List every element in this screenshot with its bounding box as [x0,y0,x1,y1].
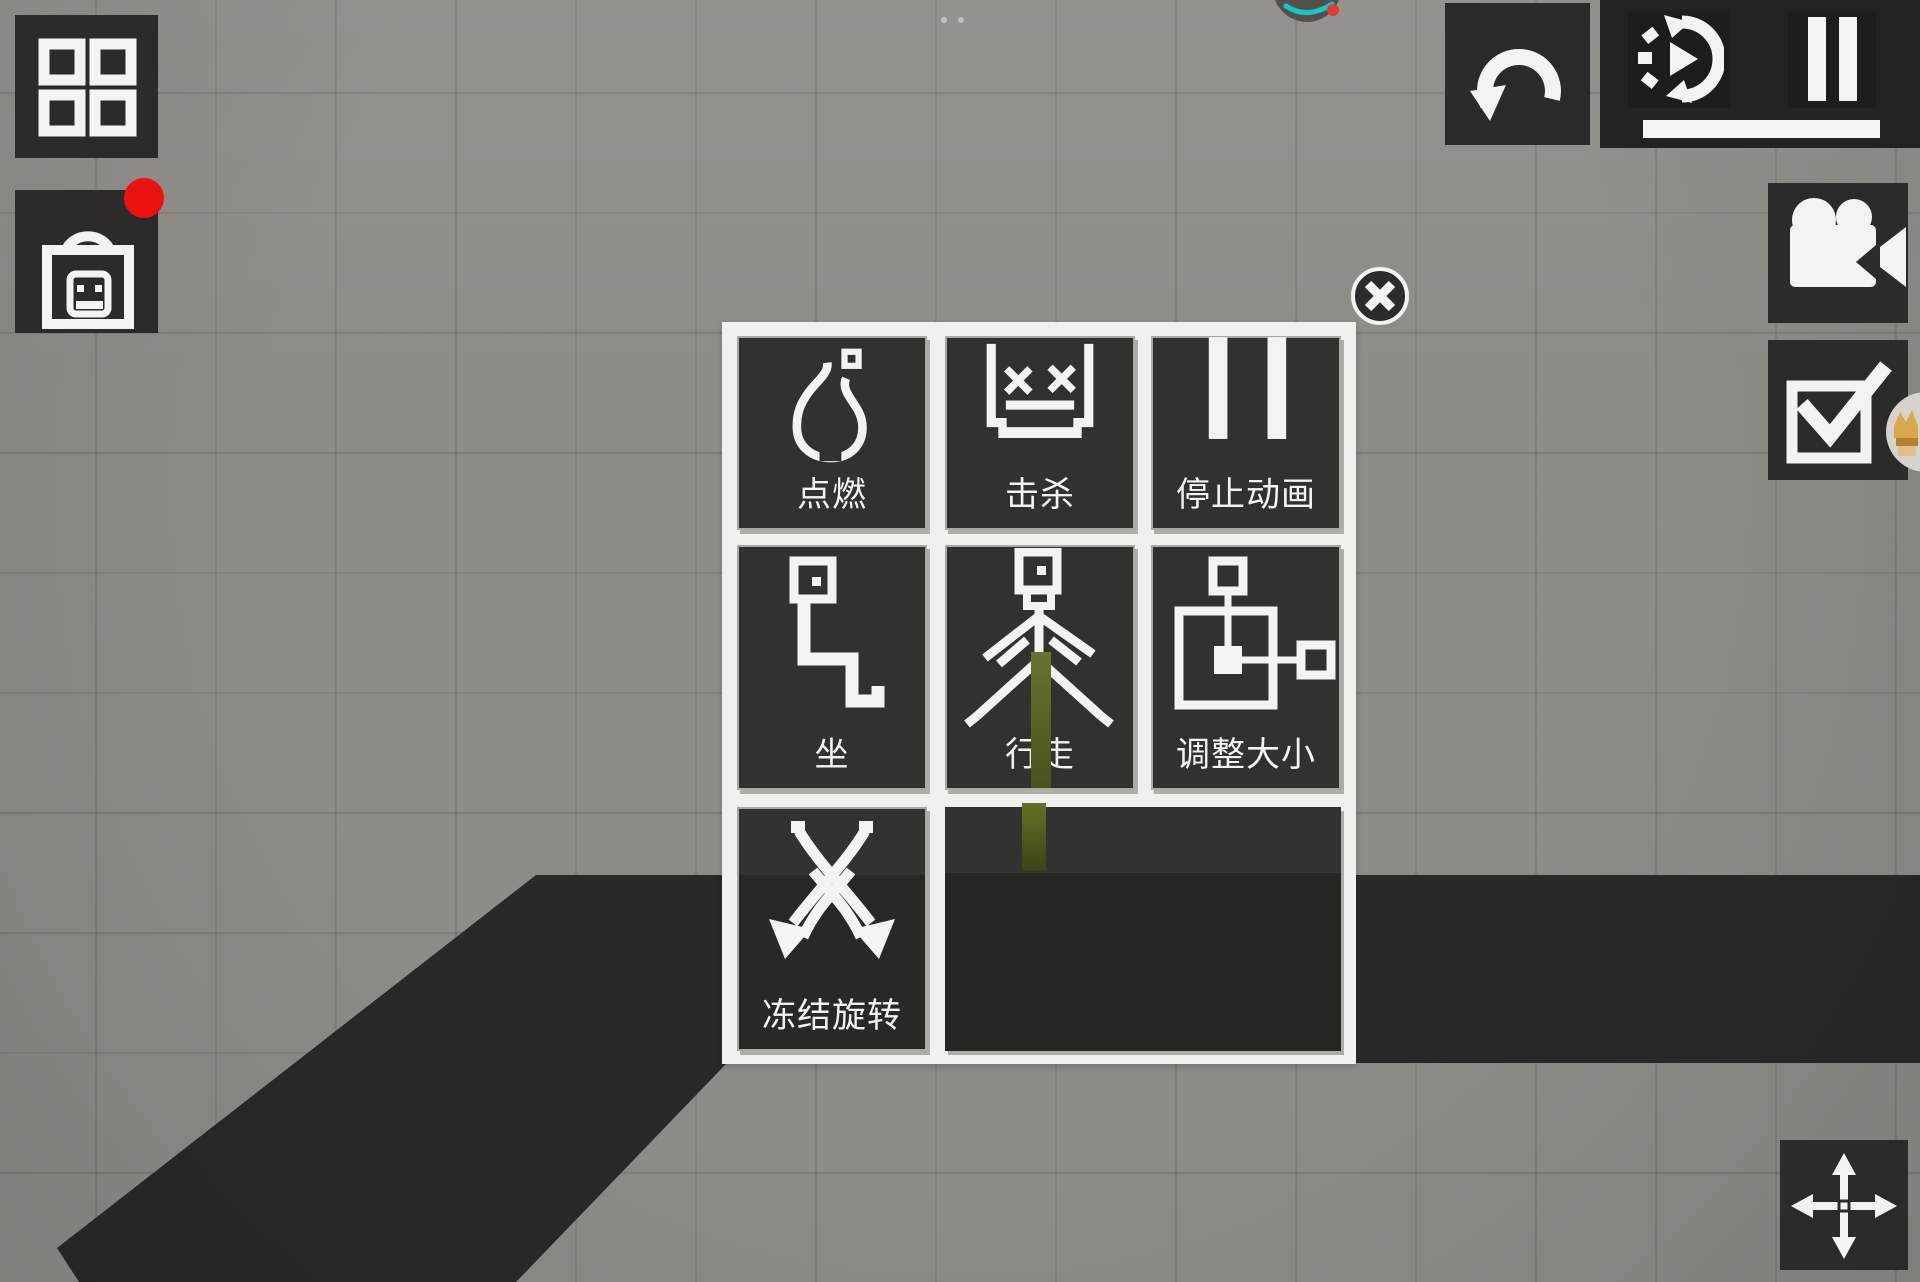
menu-empty-area [945,807,1341,1051]
action-menu-popup: 点燃 击杀 停止动画 [722,322,1356,1064]
sit-figure-icon [752,553,912,733]
debris-dot [941,17,947,23]
menu-item-stop-animation[interactable]: 停止动画 [1151,336,1341,530]
menu-item-label: 调整大小 [1176,738,1316,788]
move-button[interactable] [1780,1140,1908,1270]
time-speed-button[interactable] [1628,10,1730,108]
trophy-icon [1890,408,1920,458]
character-body-streak [1022,803,1046,871]
menu-item-label: 击杀 [1005,478,1075,528]
menu-item-ignite[interactable]: 点燃 [737,336,927,530]
grid-icon [37,37,137,137]
confirm-button[interactable] [1768,340,1908,480]
close-button[interactable] [1351,267,1409,325]
close-icon [1363,279,1397,313]
move-arrows-icon [1789,1149,1899,1261]
menu-item-label: 冻结旋转 [762,999,902,1049]
pause-bars-icon [1153,336,1339,446]
notification-dot [124,178,164,218]
undo-button[interactable] [1445,3,1590,145]
grid-menu-button[interactable] [15,15,158,158]
menu-item-resize[interactable]: 调整大小 [1151,545,1341,790]
character-body-streak [1031,652,1051,788]
pause-button[interactable] [1788,10,1876,108]
menu-item-kill[interactable]: 击杀 [945,336,1135,530]
flame-icon [757,338,907,478]
menu-item-label: 坐 [815,738,850,788]
game-viewport: 点燃 击杀 停止动画 [0,0,1920,1282]
menu-item-sit[interactable]: 坐 [737,545,927,790]
resize-icon [1153,553,1339,733]
dead-face-icon [960,338,1120,458]
menu-item-freeze-rotation[interactable]: 冻结旋转 [737,807,927,1051]
menu-item-label: 停止动画 [1176,478,1316,528]
undo-icon [1458,19,1578,129]
pause-icon [1802,15,1862,103]
menu-item-label: 点燃 [797,478,867,528]
checkbox-icon [1768,340,1908,480]
time-control-panel [1600,0,1920,148]
crossed-swords-icon [747,819,917,989]
debris-dot [958,17,964,23]
red-marker-dot [1327,4,1339,16]
time-speed-icon [1634,14,1724,104]
video-camera-icon [1768,183,1908,323]
time-slider[interactable] [1643,120,1880,138]
camera-button[interactable] [1768,183,1908,323]
